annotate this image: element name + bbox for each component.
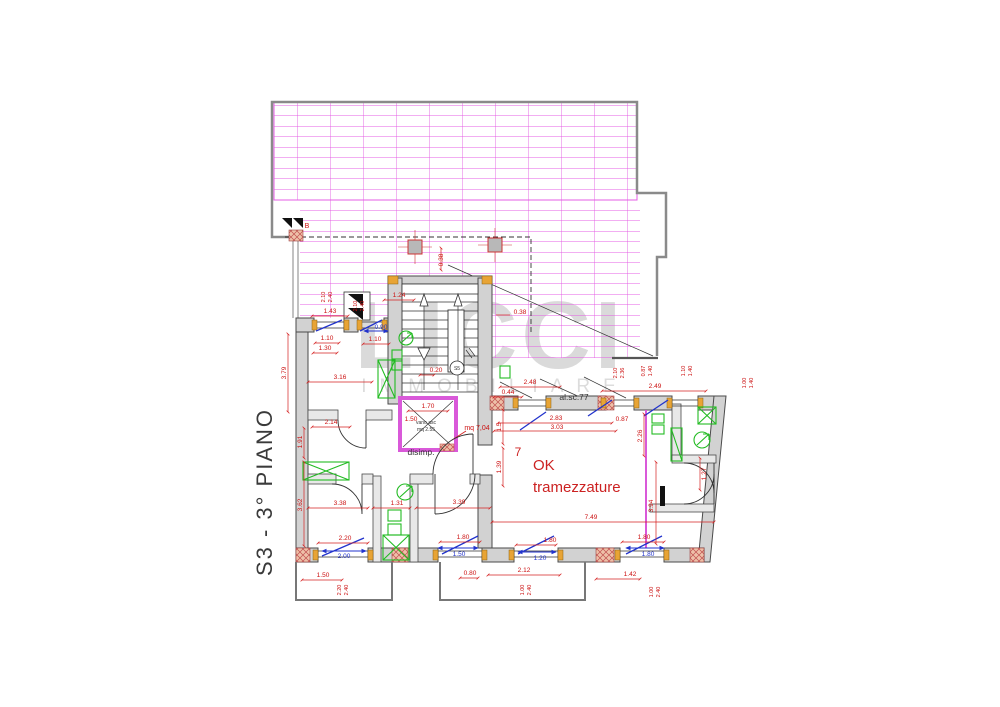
dimension-label: 2.49 [649, 383, 662, 390]
dimension-label: 3.62 [297, 498, 304, 511]
stair-height-note: al.sc.77 [559, 392, 589, 402]
dimension-label: 1.80 [457, 534, 470, 541]
dimension-label: 2.40 [360, 301, 366, 312]
dimension-label: 1.40 [688, 366, 694, 377]
dimension-label: 3.79 [281, 366, 288, 379]
dimension-label: 1.00 [520, 585, 526, 596]
hallway-label: disimp. [408, 447, 435, 457]
dimension-label: 1.10 [369, 336, 382, 343]
dimension-label: 2.14 [325, 419, 338, 426]
note-tramezzature: tramezzature [533, 479, 621, 496]
dimension-label: 2.00 [338, 553, 351, 560]
detail-marker-label: B [305, 223, 310, 230]
note-ok: OK [533, 457, 555, 474]
elevator-area-note: mq 7,04 [464, 425, 489, 432]
dimension-label: 1.80 [544, 537, 557, 544]
boiler-symbol [694, 432, 710, 448]
dimension-label: 3.94 [648, 499, 655, 512]
dimension-label: 2.48 [524, 379, 537, 386]
dimension-label: 1.24 [393, 292, 406, 299]
dimension-label: 1.80 [638, 534, 651, 541]
dimension-label: 2.10 [353, 301, 359, 312]
dimension-label: 1.40 [648, 366, 654, 377]
dimension-label: 1.40 [749, 378, 755, 389]
dimension-label: 0.87 [616, 416, 629, 423]
dimension-label: 1.31 [391, 500, 404, 507]
stair-marker-label: S5 [454, 366, 460, 372]
dimension-label: 7.49 [585, 514, 598, 521]
dimension-label: 1.10 [681, 366, 687, 377]
dimension-label: 1.43 [324, 308, 337, 315]
dimension-label: 1.20 [534, 555, 547, 562]
dimension-label: 3.03 [551, 424, 564, 431]
dimension-label: 1.10 [321, 335, 334, 342]
floor-title: S3 - 3° PIANO [252, 408, 277, 576]
dimension-label: 2.26 [637, 429, 644, 442]
dimension-label: 1.50 [405, 416, 418, 423]
interior-partitions [308, 404, 716, 562]
floor-plan-drawing: LICCI IMMOBILIARE [0, 0, 1000, 707]
dimension-label: 1.70 [422, 403, 435, 410]
dimension-label: 1.91 [297, 435, 304, 448]
dimension-label: 2.40 [328, 292, 334, 303]
floor-plan: LICCI IMMOBILIARE [0, 0, 1000, 707]
dimension-label: 2.10 [613, 368, 619, 379]
elevator-label: vano asc [416, 420, 437, 426]
dimension-label: 2.20 [337, 585, 343, 596]
dimension-label: 2.83 [550, 415, 563, 422]
dimension-label: 2.12 [518, 567, 531, 574]
dimension-label: 1.50 [453, 551, 466, 558]
dimension-label: 2.20 [339, 535, 352, 542]
dimension-label: 0.20 [430, 367, 443, 374]
dimension-label: 2.10 [321, 292, 327, 303]
dimension-label: 1.00 [649, 587, 655, 598]
dimension-label: 1.00 [742, 378, 748, 389]
dimension-label: 1.42 [624, 571, 637, 578]
dimension-label: 1.39 [496, 460, 503, 473]
dimension-label: 1.80 [642, 551, 655, 558]
dimension-label: 3.38 [334, 500, 347, 507]
dimension-label: 2.40 [656, 587, 662, 598]
dimension-label: 1.30 [319, 345, 332, 352]
dimension-label: 0.87 [641, 366, 647, 377]
dimension-label: 0.90 [375, 324, 388, 331]
dimension-label: 0.44 [502, 389, 515, 396]
dimension-label: 1.5 [496, 422, 503, 431]
dimension-label: 1.50 [317, 572, 330, 579]
dimension-label: 0.38 [514, 309, 527, 316]
dimension-label: 0.80 [464, 570, 477, 577]
elevator-area-label: mq 2.55 [417, 427, 435, 433]
dimension-label: 3.39 [453, 499, 466, 506]
dimension-label: 2.40 [344, 585, 350, 596]
dimension-label: 1.27 [701, 467, 708, 480]
dimension-label: 0.38 [438, 253, 445, 266]
room-number: 7 [515, 445, 522, 459]
dimension-label: 3.16 [334, 374, 347, 381]
dimension-label: 2.36 [620, 368, 626, 379]
dimension-label: 2.40 [527, 585, 533, 596]
